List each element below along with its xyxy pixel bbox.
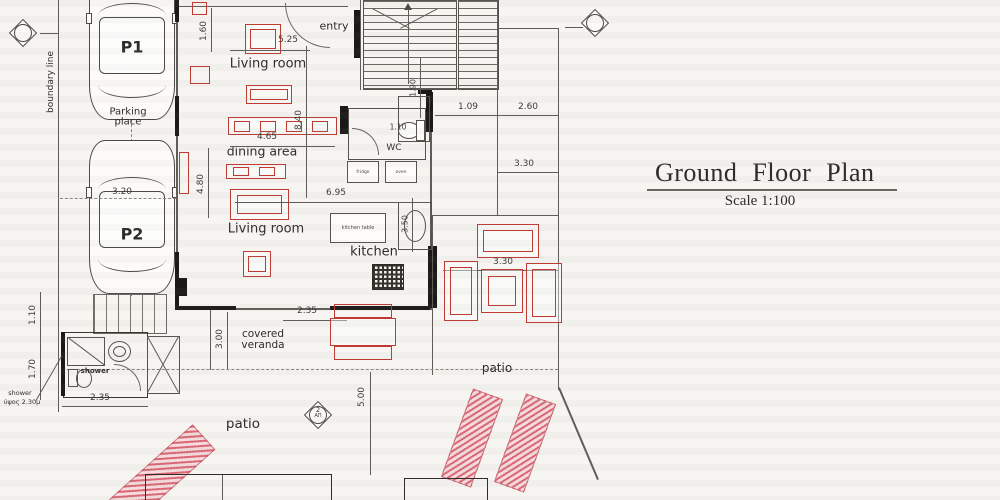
- right-boundary-slant: [558, 387, 598, 480]
- dimension-line: [230, 50, 310, 51]
- stair-direction-arrow-icon: [404, 3, 412, 10]
- chair: [234, 121, 250, 132]
- section-marker-icon: [10, 20, 36, 46]
- dimension-line: [62, 406, 148, 407]
- dimension-line: [230, 146, 335, 147]
- area-label-patio-left: patio: [226, 416, 260, 432]
- dimension-line: [40, 292, 41, 400]
- dimension-525: 5.25: [278, 35, 298, 45]
- bench: [334, 346, 392, 360]
- dimension-300-veranda: 3.00: [215, 329, 225, 349]
- kitchen-table-label-box: kitchen table: [330, 213, 386, 243]
- furniture-radiator: [179, 152, 189, 194]
- veranda-left-wall: [210, 310, 211, 370]
- dimension-260: 2.60: [518, 102, 538, 112]
- patio-chair-right: [526, 263, 562, 323]
- chair: [312, 121, 328, 132]
- right-wing-wall: [497, 0, 498, 215]
- dimension-line: [412, 198, 413, 252]
- patio-sofa: [477, 224, 539, 258]
- wall-segment: [176, 278, 187, 296]
- wall-segment: [176, 306, 236, 310]
- car-windshield: [98, 3, 166, 16]
- shaft-x-box: [147, 336, 180, 394]
- furniture-inner: [248, 256, 266, 272]
- staircase-main: [363, 0, 457, 90]
- marker-circle: [14, 24, 32, 42]
- furniture-side-table: [243, 251, 271, 277]
- dimension-235-shower: 2.35: [90, 393, 110, 403]
- furniture-inner: [532, 269, 556, 317]
- dimension-190: 1.90: [409, 79, 418, 97]
- planting-strip-hatch: [494, 393, 556, 492]
- chair: [260, 121, 276, 132]
- boundary-line-left: [58, 0, 59, 412]
- boundary-line-label: boundary line: [46, 51, 56, 113]
- dimension-330-patio: 3.30: [493, 257, 513, 267]
- dimension-480: 4.80: [196, 174, 206, 194]
- dimension-840: 8.40: [294, 110, 304, 130]
- shower-tray-diagonal: [68, 338, 105, 366]
- car-rear-window: [98, 85, 166, 98]
- dimension-line: [208, 148, 209, 218]
- dimension-235-veranda: 2.35: [297, 306, 317, 316]
- parking-spot-p1-label: P1: [121, 38, 144, 57]
- stair-walkline: [408, 8, 409, 84]
- dimension-110-wc: 1.10: [390, 123, 407, 132]
- room-label-living-room: Living room: [228, 222, 304, 237]
- patio-section-marker-icon: 2 ΑΠ: [305, 402, 331, 428]
- car-mirror: [86, 13, 92, 24]
- furniture-armchair: [190, 66, 210, 84]
- section-marker-icon: [582, 10, 608, 36]
- chair: [233, 167, 249, 176]
- furniture-inner: [450, 267, 472, 315]
- veranda-furniture-set: [326, 300, 398, 362]
- marker-leader-right: [565, 27, 583, 28]
- entry-right-wall: [360, 0, 361, 90]
- dimension-500-patio: 5.00: [357, 387, 367, 407]
- table: [330, 318, 396, 346]
- dimension-109: 1.09: [458, 102, 478, 112]
- floor-plan-sheet: boundary line P1 Parking place 3.20 P2: [0, 0, 1000, 500]
- car-dimension-dashed-line: [60, 198, 176, 199]
- pool-outline: [145, 474, 332, 500]
- marker-subtext: ΑΠ: [305, 414, 331, 419]
- right-patio-top-wall: [432, 215, 558, 216]
- dimension-320-car: 3.20: [112, 187, 132, 197]
- washbasin-icon: [108, 341, 131, 362]
- area-label-patio-right: patio: [482, 361, 512, 375]
- toilet-tank: [416, 120, 425, 141]
- dimension-330-right: 3.30: [514, 159, 534, 169]
- parking-label-line2: place: [115, 117, 142, 128]
- wall-segment: [340, 106, 348, 134]
- furniture-inner: [237, 195, 282, 214]
- dimension-170-left: 1.70: [28, 359, 38, 379]
- room-label-shower: shower: [81, 367, 110, 375]
- furniture-inner: [250, 89, 288, 100]
- dimension-350: 3.50: [401, 215, 410, 233]
- dimension-line: [370, 372, 371, 475]
- right-top-line: [497, 28, 559, 29]
- furniture-inner: [250, 29, 276, 49]
- right-boundary-line: [558, 28, 559, 390]
- patio-table: [481, 269, 523, 313]
- planting-strip-hatch: [441, 388, 503, 487]
- dimension-line: [211, 8, 212, 52]
- shower-tray: [67, 337, 105, 366]
- staircase-return-flight: [458, 0, 499, 90]
- car-p2: [89, 140, 175, 294]
- dimension-465: 4.65: [257, 132, 277, 142]
- dimension-line: [227, 312, 228, 369]
- drawing-scale: Scale 1:100: [660, 193, 860, 210]
- furniture-inner: [488, 276, 516, 306]
- exterior-steps: [93, 294, 167, 334]
- dimension-160: 1.60: [199, 21, 209, 41]
- pool-divider: [222, 475, 223, 500]
- dimension-110-left: 1.10: [28, 305, 38, 325]
- dimension-line: [235, 202, 430, 203]
- dimension-line: [497, 172, 558, 173]
- washbasin-inner: [113, 346, 126, 357]
- room-label-wc: WC: [386, 143, 401, 153]
- title-underline: [647, 189, 897, 191]
- kitchen-appliance-grid: [372, 264, 404, 290]
- furniture-dining-chairs: [226, 164, 286, 179]
- room-label-living-room-top: Living room: [230, 57, 306, 72]
- drawing-title: Ground Floor Plan: [655, 158, 875, 188]
- parking-spot-p2-label: P2: [121, 225, 144, 244]
- oven-label-box: oven: [385, 161, 417, 183]
- fridge-label-box: fridge: [347, 161, 379, 183]
- car-mirror: [86, 187, 92, 198]
- bench: [334, 304, 392, 318]
- shower-note-line1: shower: [8, 389, 31, 397]
- room-label-covered-veranda-2: veranda: [241, 339, 284, 351]
- wall-segment: [175, 96, 179, 136]
- patio-chair-left: [444, 261, 478, 321]
- wall-segment: [61, 332, 65, 396]
- room-label-kitchen: kitchen: [350, 245, 398, 260]
- chair: [259, 167, 275, 176]
- furniture-dining-table: [228, 117, 337, 135]
- dimension-line: [420, 58, 421, 118]
- furniture-inner: [483, 230, 533, 252]
- car-p1: [89, 0, 175, 120]
- furniture-red-item: [192, 2, 207, 15]
- car-rear-window: [98, 259, 166, 272]
- dimension-line: [306, 46, 307, 198]
- room-label-entry: entry: [319, 20, 348, 33]
- dimension-695: 6.95: [326, 188, 346, 198]
- furniture-sofa: [230, 189, 289, 220]
- furniture-sofa: [246, 85, 292, 104]
- lower-structure-outline: [404, 478, 488, 500]
- marker-circle: [586, 14, 604, 32]
- right-patio-left-wall: [432, 215, 433, 375]
- dimension-line: [435, 115, 558, 116]
- wall-segment: [175, 0, 179, 22]
- marker-leader-left: [40, 33, 58, 34]
